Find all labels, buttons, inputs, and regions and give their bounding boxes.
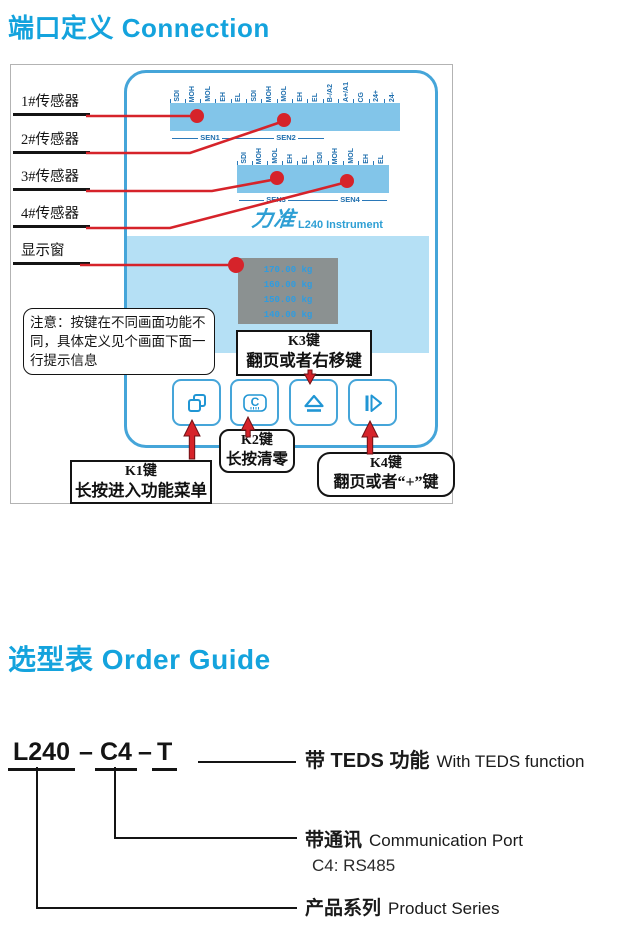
device-button-k2: C [230,379,279,426]
terminal-label: SDI [170,74,185,102]
order-code-teds: T [152,738,177,771]
eject-up-icon [301,390,327,416]
key-k1-title: K1键 [72,462,210,481]
key-k4-desc: 翻页或者“+”键 [319,473,453,493]
terminal-label: CG [354,74,369,102]
key-k4-title: K4键 [319,454,453,473]
lcd-line: 160.00 kg [238,278,338,293]
line-comm-horizontal [114,837,297,839]
key-k3-title: K3键 [238,332,370,351]
terminal-bar-1 [170,103,400,131]
terminal-label: MOH [185,74,200,102]
line-teds [198,761,296,763]
terminal-label: MOL [277,74,292,102]
terminal-label: 24+ [369,74,384,102]
feature-series: 产品系列 Product Series [305,893,500,920]
feature-comm-option: C4: RS485 [312,856,395,876]
order-code-comm: C4 [95,738,137,771]
device-name: L240 Instrument [298,219,383,231]
terminal-label: A+/A1 [339,74,354,102]
lcd-display: 170.00 kg160.00 kg150.00 kg140.00 kg [238,258,338,324]
terminal-label: EL [231,74,246,102]
terminal-label: SDI [313,137,328,164]
terminal-bar-2 [237,165,389,193]
terminal-label: MOL [201,74,216,102]
device-button-k4 [348,379,397,426]
terminal-label: EH [359,137,374,164]
terminal-labels-row2: SDIMOHMOLEHELSDIMOHMOLEHEL [237,137,389,164]
terminal-label: EH [293,74,308,102]
clear-zero-icon: C [242,390,268,416]
label-sensor-3: 3#传感器 [13,169,90,191]
terminal-label: EH [216,74,231,102]
section-title-order-guide: 选型表 Order Guide [8,638,271,678]
note-box: 注意：按键在不同画面功能不同，具体定义见个画面下面一行提示信息 [23,308,215,375]
lcd-line: 140.00 kg [238,308,338,323]
datasheet-page: 端口定义 Connection SDIMOHMOLEHELSDIMOHMOLEH… [0,0,636,939]
feature-series-zh: 产品系列 [305,893,381,920]
terminal-label: B-/A2 [323,74,338,102]
terminal-label: EL [308,74,323,102]
label-sensor-1: 1#传感器 [13,94,90,116]
pages-menu-icon [184,390,210,416]
terminal-label: MOH [328,137,343,164]
terminal-label: EH [283,137,298,164]
terminal-label: MOL [267,137,282,164]
feature-comm-zh: 带通讯 [305,825,362,852]
terminal-label: SDI [237,137,252,164]
terminal-label: EL [374,137,389,164]
feature-teds-en: With TEDS function [436,752,584,772]
lcd-line: 150.00 kg [238,293,338,308]
terminal-labels-row1: SDIMOHMOLEHELSDIMOHMOLEHELB-/A2A+/A1CG24… [170,74,400,102]
key-k3-desc: 翻页或者右移键 [238,351,370,371]
order-code-dash: – [138,738,152,767]
feature-series-en: Product Series [388,899,500,919]
feature-comm-en: Communication Port [369,831,523,851]
line-series-vertical [36,767,38,909]
svg-text:C: C [250,395,259,409]
key-k3-box: K3键 翻页或者右移键 [236,330,372,376]
label-display-window: 显示窗 [13,243,90,265]
terminal-label: EL [298,137,313,164]
sen-group-label: SEN4 [313,195,387,205]
terminal-label: MOL [343,137,358,164]
label-sensor-4: 4#传感器 [13,206,90,228]
key-k4-box: K4键 翻页或者“+”键 [317,452,455,497]
terminal-label: SDI [247,74,262,102]
lcd-line: 170.00 kg [238,263,338,278]
key-k2-box: K2键 长按清零 [219,429,295,473]
feature-teds-zh: 带 TEDS 功能 [305,744,429,773]
key-k2-title: K2键 [221,431,293,450]
line-comm-vertical [114,767,116,839]
key-k2-desc: 长按清零 [221,450,293,470]
feature-teds: 带 TEDS 功能 With TEDS function [305,744,584,773]
label-sensor-2: 2#传感器 [13,132,90,154]
key-k1-desc: 长按进入功能菜单 [72,481,210,501]
order-code-series: L240 [8,738,75,771]
section-title-connection: 端口定义 Connection [8,8,270,45]
order-code-dash: – [79,738,93,767]
feature-comm: 带通讯 Communication Port [305,825,523,852]
device-button-k3 [289,379,338,426]
terminal-label: MOH [262,74,277,102]
terminal-label: 24- [385,74,400,102]
brand-logo: 力准 [250,203,297,233]
terminal-label: MOH [252,137,267,164]
line-series-horizontal [36,907,297,909]
key-k1-box: K1键 长按进入功能菜单 [70,460,212,504]
step-right-icon [360,390,386,416]
device-button-k1 [172,379,221,426]
